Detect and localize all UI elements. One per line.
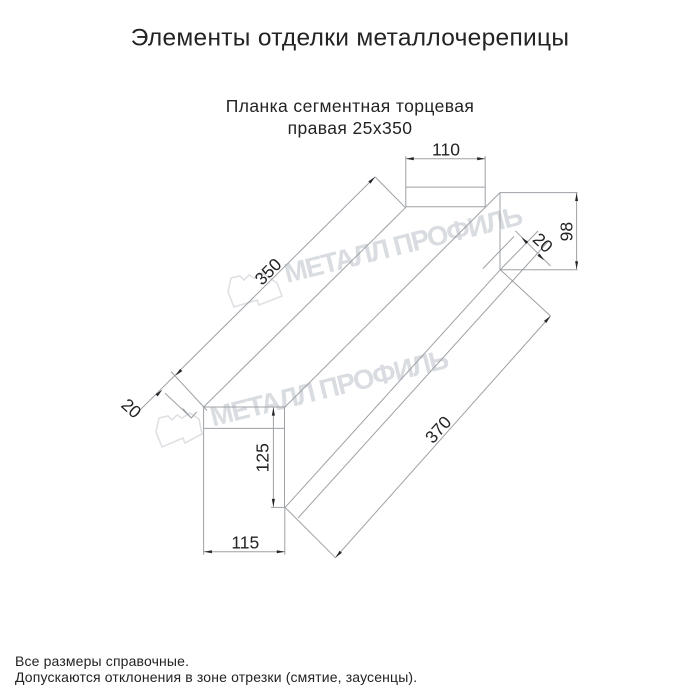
svg-text:370: 370 [421, 412, 456, 447]
svg-text:МЕТАЛЛ ПРОФИЛЬ: МЕТАЛЛ ПРОФИЛЬ [207, 343, 451, 432]
svg-text:Допускаются отклонения в зоне: Допускаются отклонения в зоне отрезки (с… [15, 669, 417, 685]
svg-text:20: 20 [117, 394, 145, 422]
svg-text:115: 115 [231, 533, 259, 553]
svg-text:98: 98 [557, 222, 577, 241]
svg-text:Все размеры справочные.: Все размеры справочные. [15, 653, 189, 669]
svg-text:20: 20 [529, 229, 557, 257]
svg-text:Элементы отделки металлочерепи: Элементы отделки металлочерепицы [131, 25, 569, 52]
svg-text:МЕТАЛЛ ПРОФИЛЬ: МЕТАЛЛ ПРОФИЛЬ [281, 200, 525, 289]
svg-text:110: 110 [432, 140, 460, 160]
svg-text:125: 125 [253, 443, 273, 472]
svg-text:Планка сегментная торцевая: Планка сегментная торцевая [226, 96, 474, 116]
svg-text:правая 25х350: правая 25х350 [288, 118, 413, 138]
